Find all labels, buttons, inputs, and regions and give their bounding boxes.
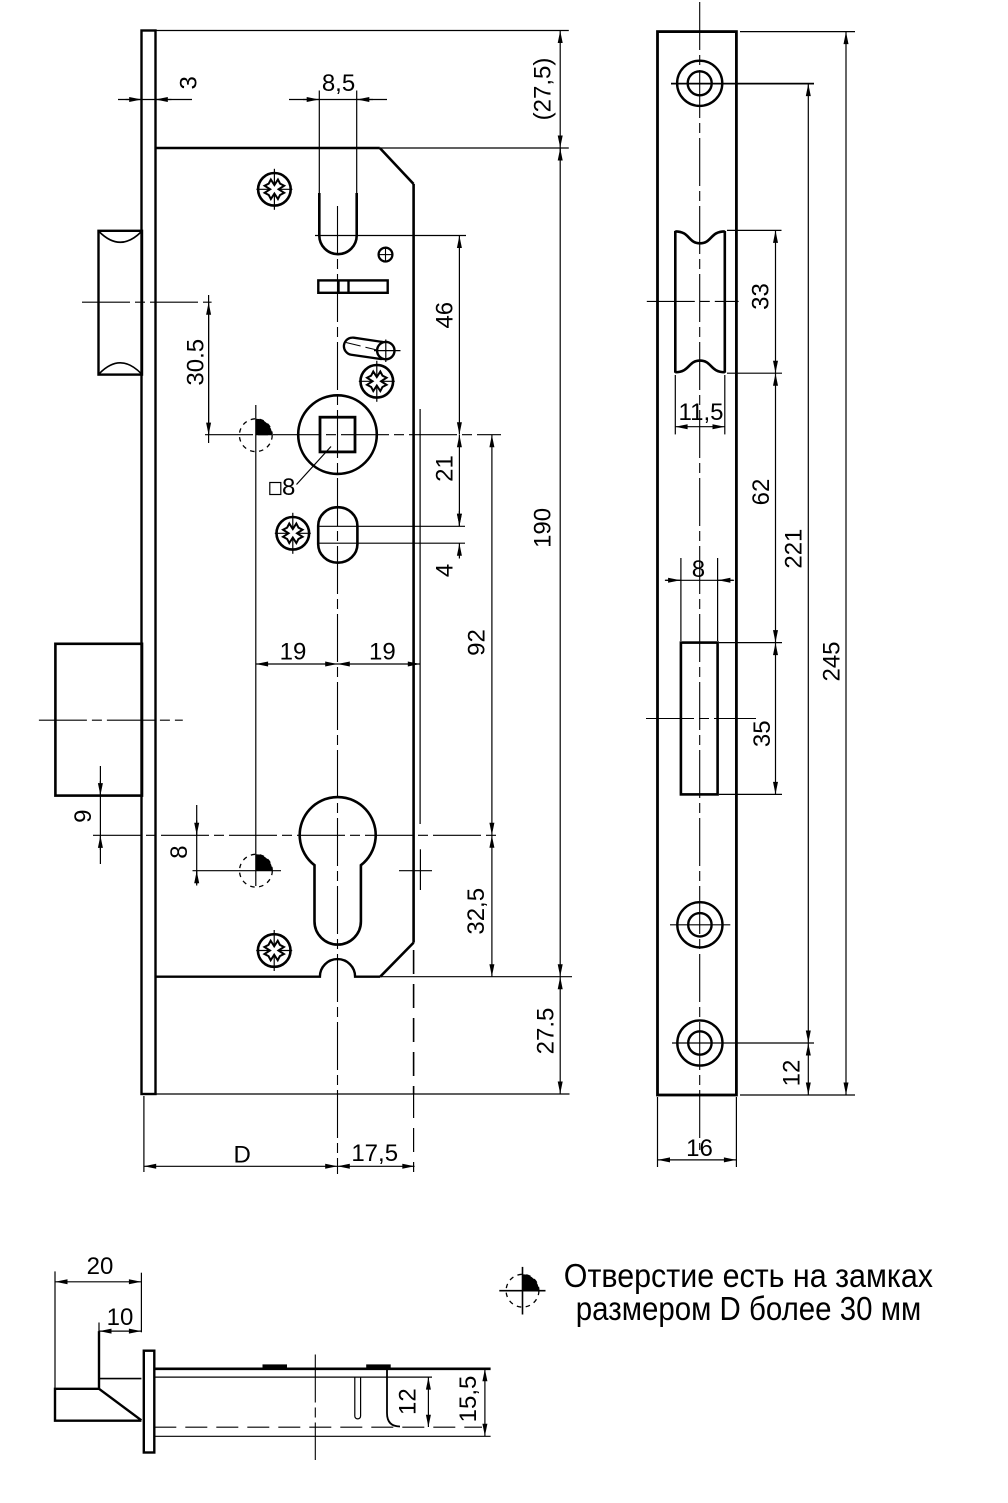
svg-text:190: 190 xyxy=(530,508,557,548)
svg-text:12: 12 xyxy=(779,1060,806,1087)
svg-text:8: 8 xyxy=(692,556,705,583)
svg-text:12: 12 xyxy=(395,1388,422,1415)
svg-text:245: 245 xyxy=(818,641,845,681)
svg-text:15,5: 15,5 xyxy=(455,1376,482,1423)
svg-text:(27,5): (27,5) xyxy=(529,58,556,121)
svg-text:21: 21 xyxy=(432,455,459,482)
svg-text:9: 9 xyxy=(70,810,97,823)
svg-text:19: 19 xyxy=(369,639,396,666)
svg-text:10: 10 xyxy=(107,1304,134,1331)
svg-text:11,5: 11,5 xyxy=(679,399,724,426)
svg-text:4: 4 xyxy=(432,564,459,577)
svg-text:27.5: 27.5 xyxy=(533,1008,560,1055)
svg-text:35: 35 xyxy=(749,720,776,747)
svg-text:62: 62 xyxy=(748,479,775,506)
svg-text:17,5: 17,5 xyxy=(351,1140,398,1167)
svg-text:221: 221 xyxy=(780,529,807,569)
svg-text:19: 19 xyxy=(280,639,307,666)
svg-text:8: 8 xyxy=(166,845,193,858)
svg-text:Отверстие есть на замках: Отверстие есть на замках xyxy=(564,1257,934,1294)
svg-text:30.5: 30.5 xyxy=(182,339,209,386)
svg-text:3: 3 xyxy=(176,76,203,89)
svg-text:8: 8 xyxy=(282,474,295,501)
svg-text:20: 20 xyxy=(87,1253,114,1280)
svg-text:16: 16 xyxy=(686,1135,713,1162)
svg-text:32,5: 32,5 xyxy=(463,888,490,935)
svg-text:46: 46 xyxy=(432,302,459,329)
svg-text:92: 92 xyxy=(464,629,491,656)
svg-text:33: 33 xyxy=(748,283,775,310)
svg-text:D: D xyxy=(234,1142,251,1169)
svg-text:размером D более 30 мм: размером D более 30 мм xyxy=(576,1290,921,1327)
svg-text:8,5: 8,5 xyxy=(322,70,355,97)
